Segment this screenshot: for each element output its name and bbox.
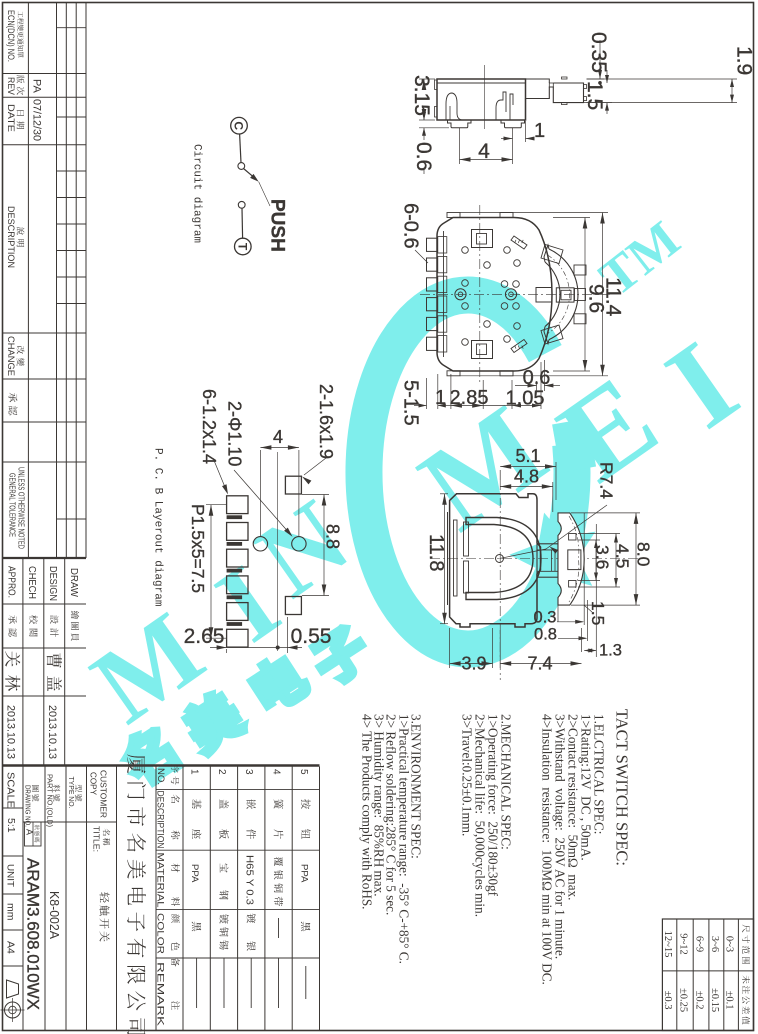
svg-text:6-1.2x1.4: 6-1.2x1.4 <box>199 389 219 464</box>
svg-text:REMARK: REMARK <box>155 962 166 1027</box>
svg-text:4>Insulation resistance: 100: 4>Insulation resistance: 100MΩ min at 10… <box>540 714 555 985</box>
svg-text:3.6: 3.6 <box>593 545 613 569</box>
svg-text:CUSTOMER: CUSTOMER <box>99 770 109 818</box>
svg-text:2.65: 2.65 <box>184 625 225 648</box>
svg-text:ECN(DCN) NO.: ECN(DCN) NO. <box>6 10 16 62</box>
svg-text:ARAM3.608.010WX: ARAM3.608.010WX <box>24 858 42 1010</box>
svg-text:8.8: 8.8 <box>323 524 343 549</box>
svg-text:PA: PA <box>31 79 43 94</box>
svg-text:DESCRIPTION: DESCRIPTION <box>155 791 166 849</box>
svg-text:2: 2 <box>216 769 227 775</box>
svg-text:CHANGE: CHANGE <box>6 336 16 376</box>
svg-text:0.35: 0.35 <box>587 32 610 73</box>
svg-text:PUSH: PUSH <box>267 199 288 252</box>
svg-text:4: 4 <box>273 427 283 447</box>
svg-text:DESCRIPTION: DESCRIPTION <box>6 206 16 268</box>
svg-text:0~3: 0~3 <box>724 936 735 952</box>
svg-text:±0.25: ±0.25 <box>678 988 689 1012</box>
svg-text:4: 4 <box>271 769 282 775</box>
svg-text:4.8: 4.8 <box>514 467 539 487</box>
svg-text:5.1: 5.1 <box>515 446 540 466</box>
svg-text:6~9: 6~9 <box>694 936 705 952</box>
svg-text:H65 Y 0.3: H65 Y 0.3 <box>244 855 255 905</box>
svg-text:3.15: 3.15 <box>410 75 433 116</box>
svg-text:TYPE NO.: TYPE NO. <box>67 777 76 809</box>
svg-text:2013.10.13: 2013.10.13 <box>5 705 17 759</box>
svg-text:11.8: 11.8 <box>425 534 447 571</box>
svg-text:NO.: NO. <box>156 768 166 785</box>
svg-text:3>Travel:0.25±0.1mm.: 3>Travel:0.25±0.1mm. <box>460 714 475 836</box>
svg-text:R7.4: R7.4 <box>597 462 617 499</box>
svg-text:DRAW: DRAW <box>68 568 79 598</box>
svg-text:SCALE: SCALE <box>5 772 16 808</box>
svg-text:0.55: 0.55 <box>291 625 332 648</box>
svg-text:DATE: DATE <box>6 104 16 132</box>
svg-text:1: 1 <box>189 769 200 775</box>
svg-text:4: 4 <box>478 140 490 163</box>
svg-text:Circuit diagram: Circuit diagram <box>191 144 203 243</box>
svg-text:±0.2: ±0.2 <box>694 991 705 1010</box>
svg-text:7.4: 7.4 <box>527 654 552 674</box>
svg-text:1.9: 1.9 <box>733 46 756 75</box>
svg-text:0.6: 0.6 <box>412 142 435 171</box>
svg-text:±0.1: ±0.1 <box>724 991 735 1010</box>
svg-text:5: 5 <box>298 769 309 775</box>
svg-text:2-1.6x1.9: 2-1.6x1.9 <box>316 384 336 459</box>
svg-text:1.5: 1.5 <box>583 81 606 110</box>
svg-text:TACT SWITCH SPEC:: TACT SWITCH SPEC: <box>613 709 632 866</box>
svg-text:0.8: 0.8 <box>534 626 557 644</box>
svg-text:P1.5x5=7.5: P1.5x5=7.5 <box>188 504 208 593</box>
svg-text:K8-002A: K8-002A <box>47 891 61 940</box>
svg-text:PPA: PPA <box>298 864 309 883</box>
svg-text:T: T <box>235 243 249 251</box>
svg-text:C: C <box>232 121 246 130</box>
svg-text:1.05: 1.05 <box>506 388 545 410</box>
svg-text:5-1.5: 5-1.5 <box>400 380 422 426</box>
svg-text:6-0.6: 6-0.6 <box>400 203 422 249</box>
svg-text:COPY: COPY <box>89 772 99 795</box>
svg-text:±0.3: ±0.3 <box>662 991 673 1010</box>
svg-text:mm: mm <box>5 903 17 921</box>
svg-text:UNIT: UNIT <box>5 864 16 887</box>
svg-text:12~15: 12~15 <box>662 931 673 958</box>
svg-text:MATERIAL: MATERIAL <box>155 853 166 908</box>
svg-text:4> The Products comply with Ro: 4> The Products comply with RoHS. <box>360 714 375 909</box>
svg-text:TITLE:: TITLE: <box>92 826 102 852</box>
svg-text:1.5: 1.5 <box>588 601 608 625</box>
svg-text:8.0: 8.0 <box>634 542 654 567</box>
svg-text:0.3: 0.3 <box>534 609 557 627</box>
svg-text:A: A <box>25 829 35 835</box>
svg-text:2013.10.13: 2013.10.13 <box>46 705 58 759</box>
svg-text:2-Φ1.10: 2-Φ1.10 <box>225 401 245 466</box>
svg-text:PPA: PPA <box>189 864 200 883</box>
svg-text:1: 1 <box>534 120 545 142</box>
svg-text:P. C. B Layerout diagram: P. C. B Layerout diagram <box>152 448 164 607</box>
svg-text:REV: REV <box>6 77 16 95</box>
svg-text:3: 3 <box>243 769 254 775</box>
svg-text:07/12/30: 07/12/30 <box>31 99 43 141</box>
svg-text:11.4: 11.4 <box>602 277 625 317</box>
svg-text:1.3: 1.3 <box>599 642 622 660</box>
svg-text:DESIGN: DESIGN <box>47 566 58 601</box>
svg-text:CHECH: CHECH <box>26 566 37 599</box>
svg-text:4.5: 4.5 <box>613 544 633 568</box>
svg-text:APPRO.: APPRO. <box>6 566 17 598</box>
svg-text:5:1: 5:1 <box>5 818 17 833</box>
svg-text:GENERAL TOLERANCE: GENERAL TOLERANCE <box>8 473 17 537</box>
svg-text:9~12: 9~12 <box>678 933 689 954</box>
svg-text:COLOR: COLOR <box>155 913 166 954</box>
svg-text:UNLESS OTHERWISE NOTED: UNLESS OTHERWISE NOTED <box>17 467 26 549</box>
svg-text:3.9: 3.9 <box>461 654 486 674</box>
svg-text:3~6: 3~6 <box>709 936 720 952</box>
svg-text:A4: A4 <box>5 941 17 954</box>
svg-text:DRAWING NO.: DRAWING NO. <box>24 785 33 827</box>
svg-text:±0.15: ±0.15 <box>709 988 720 1012</box>
